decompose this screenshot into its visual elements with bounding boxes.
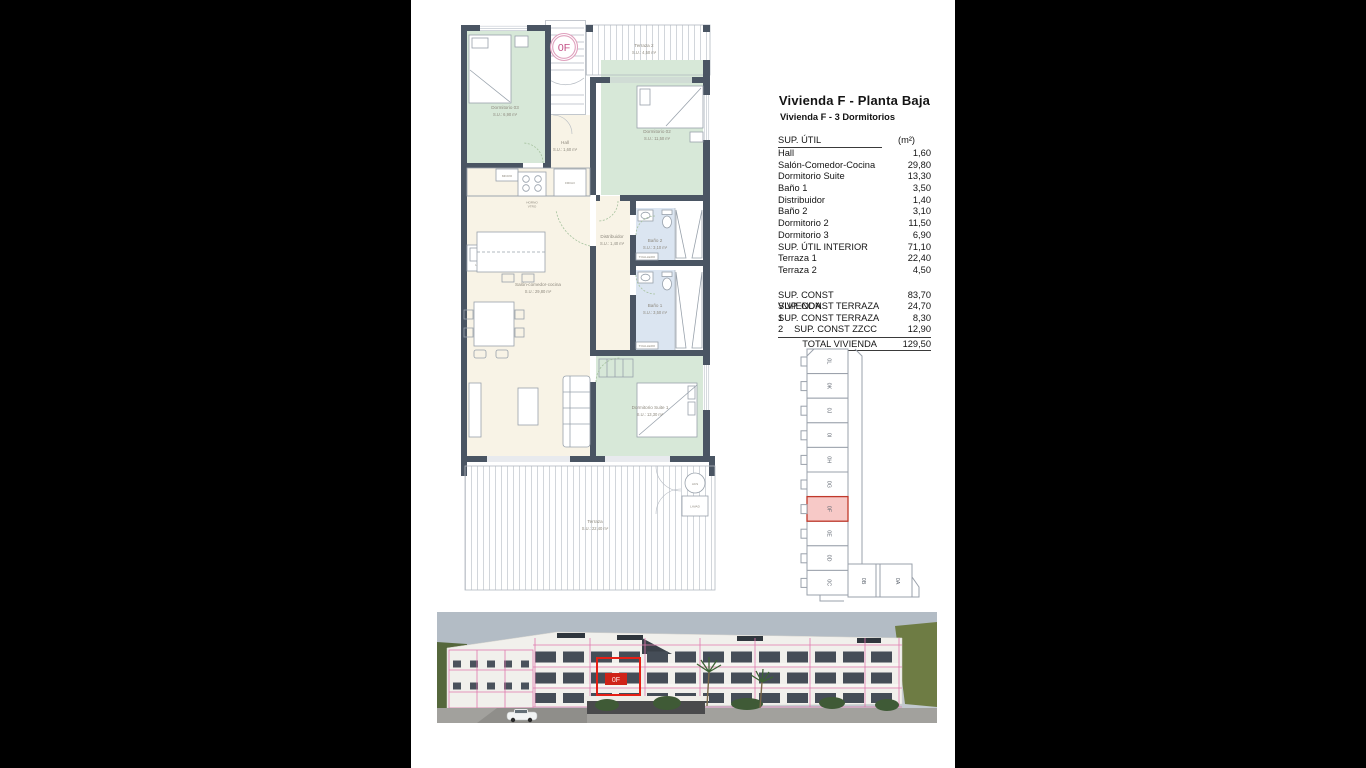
table-header-label: SUP. ÚTIL [778,134,882,148]
area-row: Dormitorio Suite13,30 [778,171,931,183]
svg-text:0C: 0C [826,579,832,586]
dorm03-area: S.U.: 6,90 m² [493,112,518,117]
frigo-label: FRIGO [565,181,575,185]
distribuidor-name: Distribuidor [600,234,624,239]
summary-row: SUP. CONST TERRAZA 28,30 [778,313,931,325]
svg-text:0H: 0H [826,456,832,463]
svg-text:0I: 0I [826,433,832,438]
bano2-name: Baño 2 [648,238,663,243]
bano1-name: Baño 1 [648,303,663,308]
salon-name: Salón-comedor-cocina [515,282,561,287]
useful-area-table: SUP. ÚTIL (m²) Hall1,60 Salón-Comedor-Co… [778,134,931,277]
bano1-area: S.U.: 3,50 m² [643,310,668,315]
svg-text:0B: 0B [860,578,866,585]
toallero-label-1: TOALLERO [639,344,656,348]
area-row: Salón-Comedor-Cocina29,80 [778,160,931,172]
render-highlight-code: 0F [612,677,620,684]
svg-text:0L: 0L [826,358,832,364]
area-row: SUP. ÚTIL INTERIOR71,10 [778,242,931,254]
document-page: MICRO FRIGO HORNO VTRO LAVA [411,0,955,768]
area-row: Terraza 122,40 [778,253,931,265]
terraza-area: S.U.: 22,40 m² [582,526,609,531]
suite-area: S.U.: 13,30 m² [637,412,664,417]
acs-label: ACS [692,482,698,486]
key-plan-cells [801,349,848,595]
table-header: SUP. ÚTIL (m²) [778,134,931,148]
dorm02-area: S.U.: 11,50 m² [644,136,671,141]
shower-bano1 [675,270,703,350]
summary-row: SUP. CONST TERRAZA 124,70 [778,301,931,313]
page-title: Vivienda F - Planta Baja [778,93,931,108]
table-header-unit: (m²) [898,134,915,148]
suite-name: Dormitorio Suite 1 [632,405,669,410]
area-row: Baño 23,10 [778,206,931,218]
area-row: Baño 13,50 [778,183,931,195]
spec-panel: Vivienda F - Planta Baja Vivienda F - 3 … [778,93,931,351]
key-plan-highlighted-label: 0F [826,506,832,513]
salon-area: S.U.: 29,80 m² [525,289,552,294]
building-render: 0F [437,612,937,723]
distribuidor-area: S.U.: 1,40 m² [600,241,625,246]
room-distribuidor [596,196,630,350]
key-plan: 0L 0K 0J 0I 0H 0G 0F 0E 0D 0C 0B 0A [800,345,940,608]
area-row: Terraza 24,50 [778,265,931,277]
dorm03-name: Dormitorio 03 [491,105,519,110]
svg-text:0A: 0A [894,578,900,585]
terraza-name: Terraza [587,519,603,524]
shower-bano2 [675,208,703,260]
room-hall [551,115,590,168]
svg-text:0J: 0J [826,408,832,414]
summary-row: SUP. CONST ZZCC12,90 [778,324,931,336]
horno-label-2: VTRO [528,205,537,209]
svg-text:0D: 0D [826,555,832,562]
page-subtitle: Vivienda F - 3 Dormitorios [778,112,931,122]
unit-badge: 0F [551,34,578,61]
hall-name: Hall [561,140,569,145]
area-row: Dormitorio 211,50 [778,218,931,230]
summary-row: SUP. CONST VIVIENDA83,70 [778,290,931,302]
area-row: Dormitorio 36,90 [778,230,931,242]
svg-text:0K: 0K [826,383,832,390]
area-row: Hall1,60 [778,148,931,160]
unit-badge-code: 0F [558,42,570,54]
micro-label: MICRO [502,174,513,178]
terraza2-area: S.U.: 4,50 m² [632,50,657,55]
toallero-label-2: TOALLERO [639,255,656,259]
hall-area: S.U.: 1,60 m² [553,147,578,152]
built-area-table: SUP. CONST VIVIENDA83,70 SUP. CONST TERR… [778,290,931,351]
dorm02-name: Dormitorio 02 [643,129,671,134]
svg-text:0E: 0E [826,530,832,537]
floor-plan: MICRO FRIGO HORNO VTRO LAVA [460,20,716,592]
terraza2-name: Terraza 2 [634,43,654,48]
lavad-label: LAVAD [690,505,700,509]
svg-text:0G: 0G [826,481,832,488]
area-row: Distribuidor1,40 [778,195,931,207]
bano2-area: S.U.: 3,10 m² [643,245,668,250]
